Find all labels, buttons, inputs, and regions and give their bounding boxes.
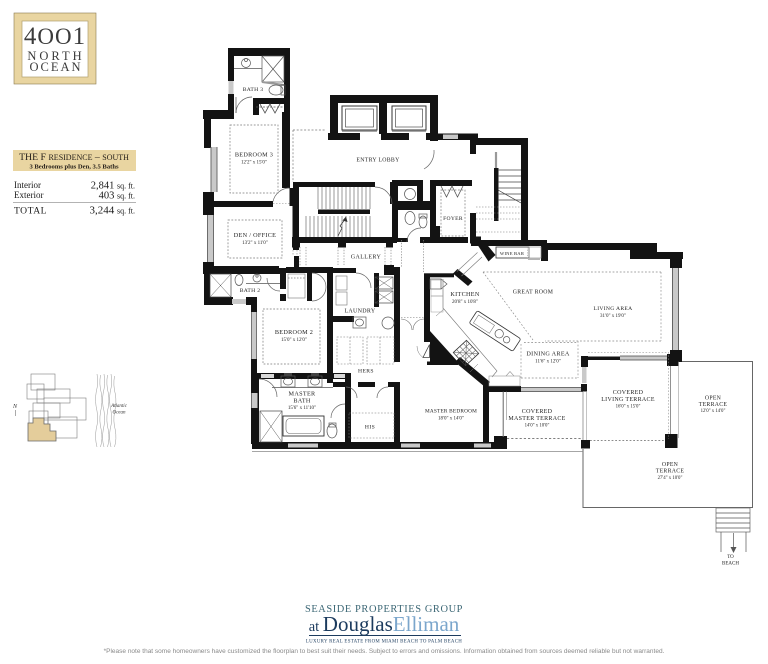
svg-text:20'8" x 10'8": 20'8" x 10'8" — [452, 300, 478, 305]
svg-text:OCEAN: OCEAN — [29, 60, 82, 74]
svg-text:BEDROOM 3: BEDROOM 3 — [235, 152, 273, 159]
svg-text:15'0" x 12'0": 15'0" x 12'0" — [281, 338, 307, 343]
svg-text:4OO1: 4OO1 — [24, 23, 86, 50]
svg-text:27'4" x 10'0": 27'4" x 10'0" — [658, 476, 683, 481]
svg-text:Interior: Interior — [14, 180, 41, 190]
svg-text:DEN / OFFICE: DEN / OFFICE — [234, 232, 276, 239]
svg-text:TERRACE: TERRACE — [699, 402, 728, 408]
svg-text:MASTER BEDROOM: MASTER BEDROOM — [425, 409, 477, 415]
svg-text:at DouglasElliman: at DouglasElliman — [309, 612, 460, 636]
svg-text:Atlantic: Atlantic — [110, 404, 128, 409]
svg-text:Ocean: Ocean — [112, 411, 126, 416]
svg-text:FOYER: FOYER — [443, 216, 463, 222]
svg-text:12'0" x 14'0": 12'0" x 14'0" — [701, 409, 726, 414]
svg-text:13'2" x 11'0": 13'2" x 11'0" — [242, 241, 268, 246]
svg-text:WINE BAR: WINE BAR — [500, 251, 525, 256]
svg-text:ENTRY LOBBY: ENTRY LOBBY — [356, 158, 400, 164]
svg-text:KITCHEN: KITCHEN — [450, 291, 479, 298]
svg-text:OPEN: OPEN — [705, 396, 722, 402]
svg-text:COVERED: COVERED — [522, 409, 553, 415]
svg-text:LUXURY REAL ESTATE FROM MIAMI: LUXURY REAL ESTATE FROM MIAMI BEACH TO P… — [306, 640, 462, 645]
svg-text:GALLERY: GALLERY — [351, 255, 382, 261]
svg-text:Exterior: Exterior — [14, 190, 44, 200]
svg-text:LIVING AREA: LIVING AREA — [594, 306, 633, 312]
svg-text:31'0" x 19'0": 31'0" x 19'0" — [600, 314, 626, 319]
svg-text:18'0" x 14'0": 18'0" x 14'0" — [438, 417, 464, 422]
svg-text:TOTAL: TOTAL — [14, 206, 47, 217]
svg-text:12'2" x 15'0": 12'2" x 15'0" — [241, 161, 267, 166]
svg-text:HIS: HIS — [365, 425, 375, 431]
svg-text:OPEN: OPEN — [662, 462, 679, 468]
svg-text:3,244 sq. ft.: 3,244 sq. ft. — [90, 205, 136, 217]
svg-text:LAUNDRY: LAUNDRY — [344, 309, 375, 315]
svg-text:HERS: HERS — [358, 369, 374, 375]
svg-text:DINING AREA: DINING AREA — [526, 351, 570, 358]
svg-text:BATH 3: BATH 3 — [243, 87, 264, 93]
svg-text:BATH: BATH — [293, 398, 311, 405]
svg-text:15'6" x 11'10": 15'6" x 11'10" — [288, 406, 316, 411]
svg-text:BATH 2: BATH 2 — [240, 288, 261, 294]
svg-text:*Please note that some homeown: *Please note that some homeowners have c… — [104, 648, 665, 655]
svg-text:LIVING TERRACE: LIVING TERRACE — [601, 397, 655, 403]
svg-text:MASTER: MASTER — [289, 391, 316, 398]
svg-text:3 Bedrooms plus Den, 3.5 Baths: 3 Bedrooms plus Den, 3.5 Baths — [29, 164, 119, 171]
svg-text:BEDROOM 2: BEDROOM 2 — [275, 329, 313, 336]
svg-text:MASTER TERRACE: MASTER TERRACE — [508, 416, 565, 422]
svg-text:COVERED: COVERED — [613, 390, 644, 396]
svg-text:403 sq. ft.: 403 sq. ft. — [99, 191, 135, 202]
svg-text:BEACH: BEACH — [722, 562, 739, 567]
svg-text:THE F RESIDENCE – SOUTH: THE F RESIDENCE – SOUTH — [19, 152, 129, 163]
svg-text:TERRACE: TERRACE — [656, 469, 685, 475]
svg-text:16'0" x 15'0": 16'0" x 15'0" — [616, 405, 641, 410]
svg-text:TO: TO — [727, 555, 734, 560]
svg-text:GREAT ROOM: GREAT ROOM — [513, 290, 553, 296]
svg-text:14'0" x 10'0": 14'0" x 10'0" — [525, 424, 550, 429]
svg-text:11'6" x 12'0": 11'6" x 12'0" — [535, 360, 561, 365]
